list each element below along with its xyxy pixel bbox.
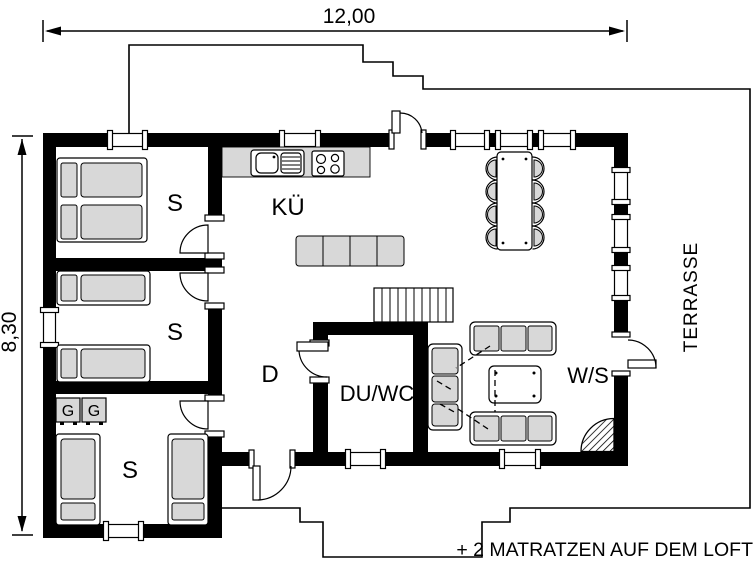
dimension-height-label: 8,30 xyxy=(0,312,21,353)
stairs xyxy=(374,288,453,322)
dining-table xyxy=(497,152,532,250)
coffee-table xyxy=(489,366,541,403)
dimension-top-arrow-right xyxy=(609,27,625,36)
wardrobe-right-label: G xyxy=(88,403,100,420)
label-bedroom3: S xyxy=(122,457,138,484)
window-east-2 xyxy=(612,215,630,253)
dimension-top: 12,00 xyxy=(43,5,627,42)
floor-plan-svg: 12,00 8,30 xyxy=(0,0,755,566)
kitchen-sink xyxy=(251,150,304,176)
window-west-bedroom2 xyxy=(41,308,59,348)
dimension-width-label: 12,00 xyxy=(323,5,376,28)
fireplace xyxy=(581,419,614,452)
window-north-5 xyxy=(539,131,576,150)
wall-bedroom-corridor xyxy=(208,147,222,538)
window-east-1 xyxy=(612,168,630,205)
opening-bedroom1-door xyxy=(207,221,223,253)
window-north-3 xyxy=(451,131,490,150)
wall-duwc-north xyxy=(313,322,428,335)
dimension-left-arrow-bottom xyxy=(18,516,27,532)
kitchen-island xyxy=(296,236,404,266)
label-terrace: TERRASSE xyxy=(681,242,702,352)
wardrobe-left-label: G xyxy=(62,403,74,420)
window-east-3 xyxy=(612,266,630,301)
kitchen-stove xyxy=(312,151,344,176)
label-living: W/S xyxy=(567,363,609,388)
window-south-duwc xyxy=(346,450,386,469)
label-kitchen: KÜ xyxy=(271,194,304,221)
wall-divider-s1-s2 xyxy=(56,258,208,271)
opening-terrace-door xyxy=(613,337,629,371)
dimension-left: 8,30 xyxy=(0,136,33,535)
wardrobes: G G xyxy=(56,398,106,425)
wall-duwc-east xyxy=(413,335,428,452)
wall-divider-s2-s3 xyxy=(56,381,208,394)
sofa-left xyxy=(428,344,462,430)
dining-set xyxy=(486,152,544,250)
label-hallway: D xyxy=(261,361,278,388)
bedroom2-beds xyxy=(57,271,150,382)
opening-south-entry xyxy=(253,451,291,467)
label-bath: DU/WC xyxy=(340,381,415,406)
opening-north-entry xyxy=(393,132,422,148)
label-bedroom1: S xyxy=(167,190,183,217)
sofa-top xyxy=(470,322,556,355)
loft-annotation: + 2 MATRATZEN AUF DEM LOFT xyxy=(456,539,753,561)
floor-plan: 12,00 8,30 xyxy=(0,0,755,566)
window-north-4 xyxy=(496,131,533,150)
window-south-bedroom3 xyxy=(104,522,144,541)
window-north-1 xyxy=(108,131,148,150)
window-south-living xyxy=(500,450,541,469)
opening-bedroom2-door xyxy=(207,273,223,303)
sofa-bottom xyxy=(470,412,556,445)
label-bedroom2: S xyxy=(167,319,183,346)
dimension-top-arrow-left xyxy=(45,27,61,36)
kitchen-fixtures xyxy=(222,147,404,266)
bedroom1-bed xyxy=(57,158,147,242)
opening-bedroom3-door xyxy=(207,401,223,431)
dimension-left-arrow-top xyxy=(18,139,27,155)
